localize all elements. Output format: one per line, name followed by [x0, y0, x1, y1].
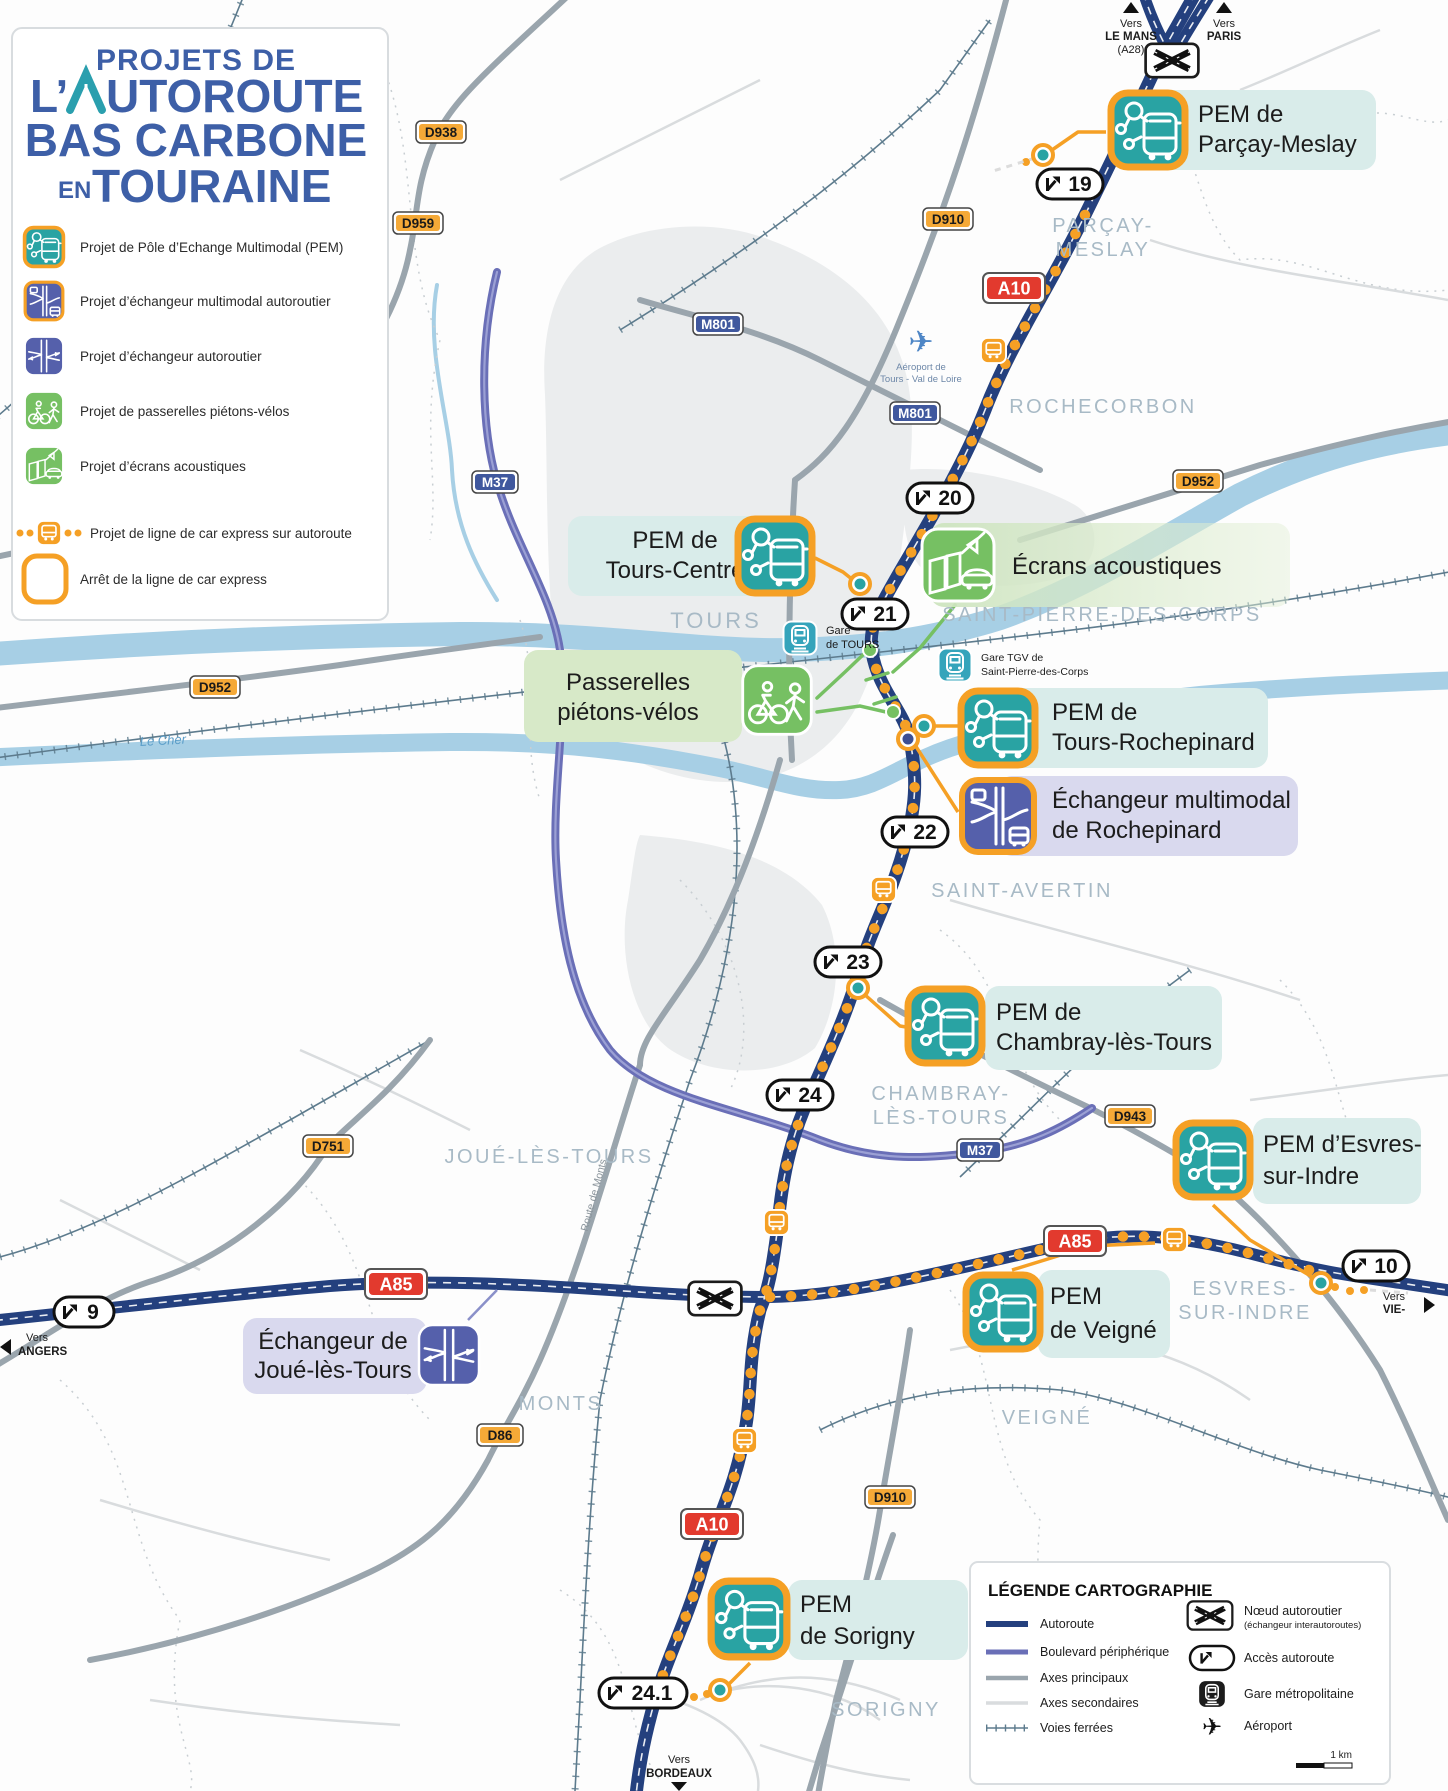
svg-text:D943: D943 [1114, 1109, 1147, 1124]
svg-text:D910: D910 [874, 1490, 906, 1505]
svg-text:Accès autoroute: Accès autoroute [1244, 1651, 1334, 1665]
svg-text:D938: D938 [425, 125, 458, 140]
city-label: CHAMBRAY- [871, 1083, 1010, 1105]
junction-24: 24 [767, 1080, 833, 1110]
svg-text:20: 20 [938, 487, 961, 510]
badge-a85-e: A85 [1044, 1226, 1106, 1256]
svg-text:Chambray-lès-Tours: Chambray-lès-Tours [996, 1029, 1212, 1056]
svg-text:19: 19 [1068, 173, 1091, 196]
svg-text:24: 24 [798, 1084, 822, 1107]
svg-text:Parçay-Meslay: Parçay-Meslay [1198, 131, 1357, 158]
svg-text:PEM: PEM [1050, 1283, 1102, 1310]
badge-d943: D943 [1105, 1105, 1155, 1127]
junction-24-1: 24.1 [599, 1678, 687, 1708]
svg-text:Axes principaux: Axes principaux [1040, 1671, 1129, 1685]
svg-text:Projet de passerelles piétons-: Projet de passerelles piétons-vélos [80, 404, 290, 419]
svg-text:A10: A10 [997, 279, 1030, 299]
city-label: MESLAY [1056, 239, 1151, 261]
junction-10: 10 [1343, 1251, 1409, 1281]
echangeur-autoroutier-icon [419, 1325, 479, 1385]
svg-text:Axes secondaires: Axes secondaires [1040, 1696, 1139, 1710]
legend-carto-box: LÉGENDE CARTOGRAPHIE Autoroute Boulevard… [970, 1562, 1390, 1784]
city-label: ROCHECORBON [1009, 396, 1197, 418]
bus-stop-icon [764, 1210, 789, 1235]
gare-tgv-label: Gare TGV de [981, 652, 1043, 664]
junction-22: 22 [882, 817, 948, 847]
city-label: SAINT-AVERTIN [931, 880, 1113, 902]
callout-pem-sorigny: PEM de Sorigny [711, 1580, 968, 1660]
svg-text:Tours-Rochepinard: Tours-Rochepinard [1052, 729, 1255, 756]
svg-text:D910: D910 [932, 212, 964, 227]
pem-icon [1176, 1123, 1250, 1197]
motorway-node-icon [689, 1282, 742, 1315]
svg-text:22: 22 [913, 821, 936, 844]
badge-a10-s: A10 [681, 1509, 743, 1539]
gare-tgv-label: Saint-Pierre-des-Corps [981, 666, 1088, 678]
bus-stop-icon [1162, 1227, 1187, 1252]
svg-text:de Sorigny: de Sorigny [800, 1623, 915, 1650]
badge-d959: D959 [393, 212, 443, 234]
callout-pem-esvres: PEM d’Esvres- sur-Indre [1176, 1118, 1422, 1204]
echangeur-multimodal-icon [962, 780, 1034, 852]
svg-text:TOURAINE: TOURAINE [92, 160, 331, 212]
pem-icon [25, 228, 64, 267]
junction-9: 9 [54, 1297, 114, 1327]
svg-text:D952: D952 [199, 680, 231, 695]
pem-icon [908, 989, 982, 1063]
svg-text:VIE-: VIE- [1383, 1304, 1406, 1316]
echangeur-autoroutier-icon [25, 337, 63, 375]
svg-text:D86: D86 [488, 1428, 513, 1443]
svg-text:Projet de ligne de car express: Projet de ligne de car express sur autor… [90, 526, 352, 541]
junction-21: 21 [842, 599, 908, 629]
legend-carto-title: LÉGENDE CARTOGRAPHIE [988, 1581, 1213, 1600]
badge-d751: D751 [303, 1135, 353, 1157]
svg-text:Vers: Vers [1213, 18, 1236, 30]
badge-m801-e: M801 [890, 402, 940, 424]
motorway-node-icon [1188, 1601, 1233, 1629]
svg-text:sur-Indre: sur-Indre [1263, 1163, 1359, 1190]
svg-text:EN: EN [58, 177, 91, 204]
svg-text:D959: D959 [402, 216, 434, 231]
city-label: SORIGNY [831, 1699, 941, 1721]
svg-text:Arrêt de la ligne de car expre: Arrêt de la ligne de car express [80, 572, 267, 587]
svg-text:M37: M37 [482, 475, 508, 490]
svg-text:D952: D952 [1182, 474, 1214, 489]
svg-text:PEM de: PEM de [1052, 699, 1137, 726]
svg-text:ANGERS: ANGERS [18, 1346, 68, 1358]
svg-text:(échangeur interautoroutes): (échangeur interautoroutes) [1244, 1620, 1361, 1631]
badge-a10-n: A10 [983, 273, 1045, 303]
svg-text:PEM: PEM [800, 1591, 852, 1618]
acces-autoroute-icon [1190, 1646, 1234, 1670]
svg-text:M801: M801 [701, 317, 735, 332]
svg-text:21: 21 [873, 603, 897, 626]
svg-text:M37: M37 [967, 1143, 993, 1158]
bus-stop-icon [981, 338, 1006, 363]
svg-text:23: 23 [846, 951, 869, 974]
svg-text:Passerelles: Passerelles [566, 669, 690, 696]
city-label: MONTS [519, 1393, 604, 1415]
svg-text:Aéroport: Aéroport [1244, 1719, 1292, 1733]
pem-icon [961, 691, 1035, 765]
poster-title-line4: EN TOURAINE [58, 160, 331, 212]
badge-m37-s: M37 [957, 1139, 1003, 1161]
svg-text:A85: A85 [1058, 1232, 1091, 1252]
bus-stop-icon [871, 877, 896, 902]
airplane-icon: ✈ [908, 326, 933, 359]
badge-d910-n: D910 [923, 208, 973, 230]
city-label: ESVRES- [1192, 1278, 1297, 1300]
svg-text:Projet d’échangeur multimodal: Projet d’échangeur multimodal autoroutie… [80, 294, 331, 309]
title-legend-box: PROJETS DE L’ UTOROUTE BAS CARBONE EN TO… [12, 28, 388, 620]
airport-label: Tours - Val de Loire [880, 374, 962, 385]
callout-pem-chambray: PEM de Chambray-lès-Tours [908, 986, 1222, 1070]
aeroport-icon: ✈ [1202, 1714, 1222, 1741]
junction-23: 23 [815, 947, 881, 977]
badge-m801-w: M801 [693, 313, 743, 335]
callout-pem-veigne: PEM de Veigné [966, 1270, 1170, 1358]
city-label: LÈS-TOURS [873, 1106, 1010, 1129]
badge-d952-e: D952 [1173, 470, 1223, 492]
badge-d952-w: D952 [190, 676, 240, 698]
svg-text:1 km: 1 km [1330, 1750, 1352, 1761]
gare-tours-icon [784, 622, 817, 655]
callout-pem-parcay-meslay: PEM de Parçay-Meslay [1111, 90, 1376, 170]
city-label: SUR-INDRE [1178, 1302, 1312, 1324]
svg-text:A10: A10 [695, 1515, 728, 1535]
svg-text:Projet d’écrans acoustiques: Projet d’écrans acoustiques [80, 459, 246, 474]
svg-text:Gare métropolitaine: Gare métropolitaine [1244, 1687, 1354, 1701]
svg-text:Écrans acoustiques: Écrans acoustiques [1012, 553, 1221, 580]
svg-text:(A28): (A28) [1118, 44, 1145, 56]
svg-text:Vers: Vers [26, 1332, 49, 1344]
svg-text:A85: A85 [379, 1275, 412, 1295]
svg-text:10: 10 [1374, 1255, 1397, 1278]
svg-text:Vers: Vers [1383, 1291, 1406, 1303]
junction-20: 20 [907, 483, 973, 513]
svg-text:PEM d’Esvres-: PEM d’Esvres- [1263, 1131, 1422, 1158]
badge-m37-n: M37 [472, 471, 518, 493]
city-label: JOUÉ-LÈS-TOURS [444, 1145, 653, 1168]
bus-stop-icon [732, 1428, 757, 1453]
pem-icon [711, 1581, 787, 1657]
svg-text:Tours-Centre: Tours-Centre [606, 557, 745, 584]
pem-icon [966, 1275, 1040, 1349]
gare-tgv-icon [939, 649, 972, 682]
passerelles-icon [743, 666, 812, 735]
pem-icon [738, 519, 812, 593]
svg-text:Projet de Pôle d’Echange Multi: Projet de Pôle d’Echange Multimodal (PEM… [80, 240, 343, 255]
callout-ecrans-acoustiques: Écrans acoustiques [922, 523, 1290, 607]
city-label: SAINT-PIERRE-DES-CORPS [942, 604, 1261, 626]
map-canvas: PARÇAY- MESLAY ROCHECORBON TOURS SAINT-P… [0, 0, 1448, 1791]
svg-text:PEM de: PEM de [1198, 101, 1283, 128]
city-label: TOURS [670, 608, 762, 633]
airport-label: Aéroport de [896, 362, 946, 373]
callout-pem-tours-centre: PEM de Tours-Centre [568, 516, 812, 596]
badge-a85-w: A85 [365, 1269, 427, 1299]
ecrans-acoustiques-icon [922, 529, 994, 601]
svg-text:BORDEAUX: BORDEAUX [646, 1768, 712, 1780]
map-poster: PARÇAY- MESLAY ROCHECORBON TOURS SAINT-P… [0, 0, 1448, 1791]
svg-text:24.1: 24.1 [632, 1682, 673, 1705]
badge-d910-s: D910 [865, 1486, 915, 1508]
badge-d86: D86 [477, 1424, 523, 1446]
poster-title-line3: BAS CARBONE [25, 114, 367, 166]
svg-text:PARIS: PARIS [1207, 31, 1242, 43]
svg-text:PEM de: PEM de [632, 527, 717, 554]
motorway-node-icon [1146, 44, 1199, 77]
svg-text:Projet d’échangeur autoroutier: Projet d’échangeur autoroutier [80, 349, 262, 364]
city-label: PARÇAY- [1052, 215, 1154, 237]
passerelles-icon [25, 392, 63, 430]
svg-text:D751: D751 [312, 1139, 345, 1154]
gare-tours-label: de TOURS [826, 639, 879, 651]
svg-text:Échangeur multimodal: Échangeur multimodal [1052, 787, 1291, 814]
svg-text:9: 9 [87, 1301, 99, 1324]
callout-echangeur-rochepinard: Échangeur multimodal de Rochepinard [962, 776, 1298, 856]
svg-text:Nœud autoroutier: Nœud autoroutier [1244, 1604, 1342, 1618]
svg-text:Joué-lès-Tours: Joué-lès-Tours [254, 1357, 411, 1384]
ecrans-acoustiques-icon [25, 447, 63, 485]
svg-text:Échangeur de: Échangeur de [258, 1328, 407, 1355]
svg-text:Vers: Vers [1120, 18, 1143, 30]
car-express-icon [37, 521, 61, 545]
callout-pem-rochepinard: PEM de Tours-Rochepinard [961, 688, 1268, 768]
svg-text:de Rochepinard: de Rochepinard [1052, 817, 1221, 844]
svg-text:PEM de: PEM de [996, 999, 1081, 1026]
river-label-cher: Le Cher [139, 732, 187, 749]
svg-text:Voies ferrées: Voies ferrées [1040, 1721, 1113, 1735]
gare-metropolitaine-icon [1199, 1681, 1225, 1707]
callout-echangeur-joue: Échangeur de Joué-lès-Tours [243, 1318, 479, 1394]
svg-text:de Veigné: de Veigné [1050, 1317, 1157, 1344]
svg-text:M801: M801 [898, 406, 932, 421]
echangeur-multimodal-icon [25, 282, 63, 320]
svg-text:Autoroute: Autoroute [1040, 1617, 1094, 1631]
junction-19: 19 [1037, 169, 1103, 199]
pem-icon [1111, 93, 1185, 167]
svg-text:piétons-vélos: piétons-vélos [557, 699, 698, 726]
svg-text:LE MANS: LE MANS [1105, 31, 1157, 43]
svg-text:Vers: Vers [668, 1754, 691, 1766]
svg-text:Boulevard périphérique: Boulevard périphérique [1040, 1645, 1169, 1659]
badge-d938: D938 [416, 121, 466, 143]
city-label: VEIGNÉ [1002, 1406, 1093, 1429]
